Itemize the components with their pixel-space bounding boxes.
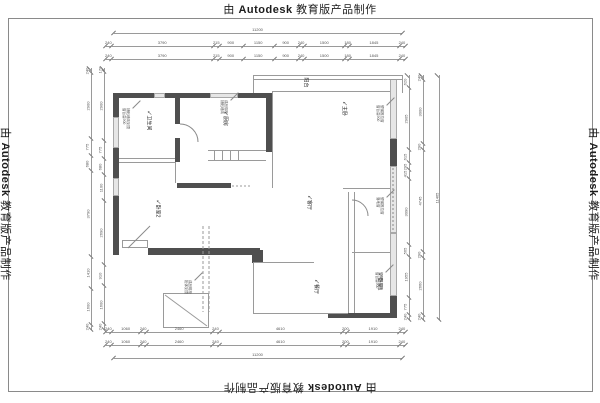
- dim-top-row2: 2403790215900115090024015001801845240: [105, 53, 405, 60]
- room-label-bathroom: ↙卫生间: [146, 110, 151, 130]
- room-label-balcony: 阳台: [303, 77, 308, 87]
- annotation: 成品橱柜铺贴墙砖: [220, 100, 228, 114]
- dim-left-inner: 1702900775680110026909101600240: [98, 68, 105, 330]
- annotation: 铺贴墙砖到顶窗台高900: [122, 108, 130, 129]
- room-label-living-room: ↙客厅: [306, 195, 311, 210]
- annotation: 塑钢推拉窗落地窗: [376, 197, 384, 215]
- dim-bottom-total: 11200: [113, 352, 402, 359]
- dim-bottom-row1: 2401060240246024046102001910240: [105, 326, 405, 333]
- room-label-bedroom2: ↙卧室2: [154, 200, 159, 218]
- dim-right-outer: 240300029047452902660240: [417, 75, 424, 320]
- room-label-dining-room: ↙餐厅: [313, 279, 318, 294]
- dim-top-row1: 2403790215900115090024015001801845240: [105, 40, 405, 47]
- annotation: 塑钢推拉窗窗台高900: [375, 272, 383, 290]
- dim-bottom-row2: 2401060240246024046102001910240: [105, 339, 405, 346]
- annotation: 塑钢推拉窗窗台高900: [376, 105, 384, 123]
- dim-top-total: 11200: [113, 27, 402, 34]
- room-label-master-bedroom: ↙主卧: [341, 101, 346, 116]
- annotation: 成品鞋柜柜体到顶: [184, 280, 192, 294]
- dim-right-inner: 620290561529541530905651955775240: [403, 75, 410, 320]
- dim-left-outer: 2402900775680379014101600240: [85, 68, 92, 330]
- dim-right-total: 11465: [433, 75, 440, 320]
